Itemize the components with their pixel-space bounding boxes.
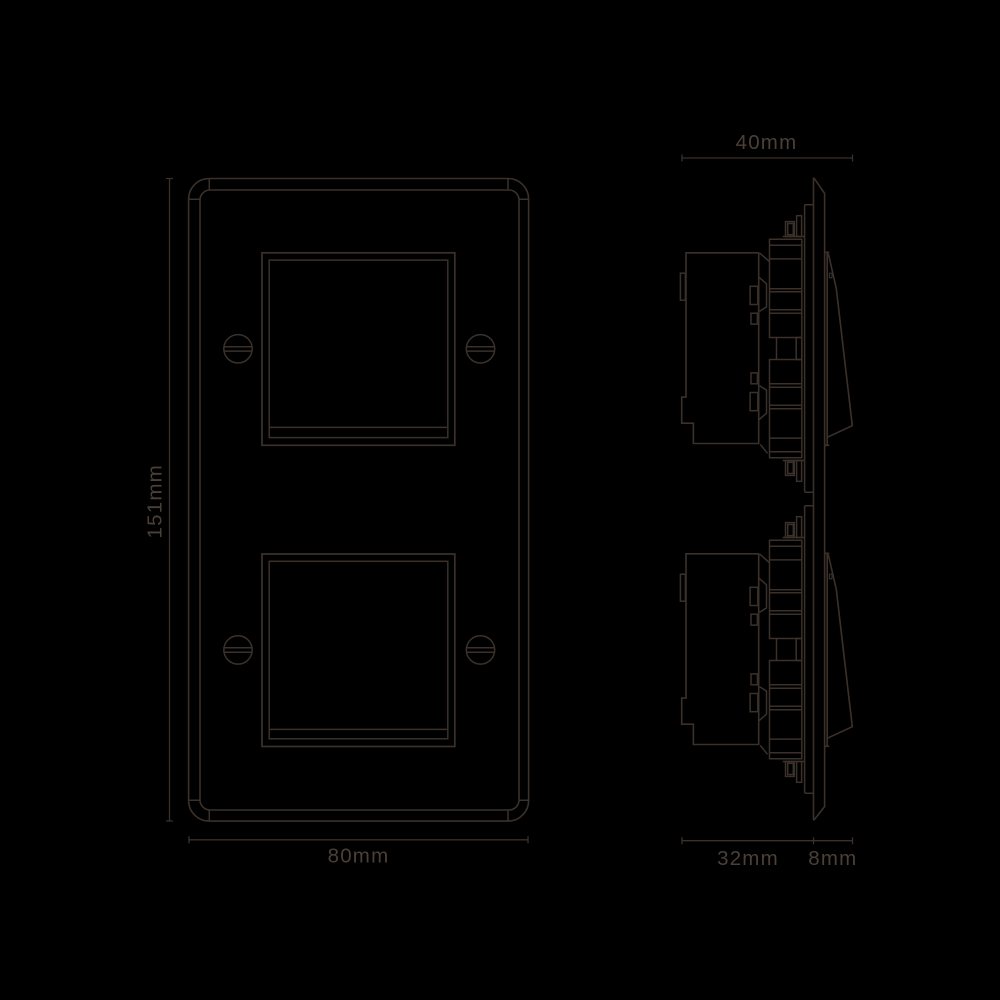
svg-text:151mm: 151mm: [144, 464, 167, 538]
svg-text:8mm: 8mm: [808, 847, 857, 870]
svg-text:32mm: 32mm: [717, 847, 779, 870]
svg-text:40mm: 40mm: [736, 131, 798, 154]
svg-text:80mm: 80mm: [328, 845, 390, 868]
